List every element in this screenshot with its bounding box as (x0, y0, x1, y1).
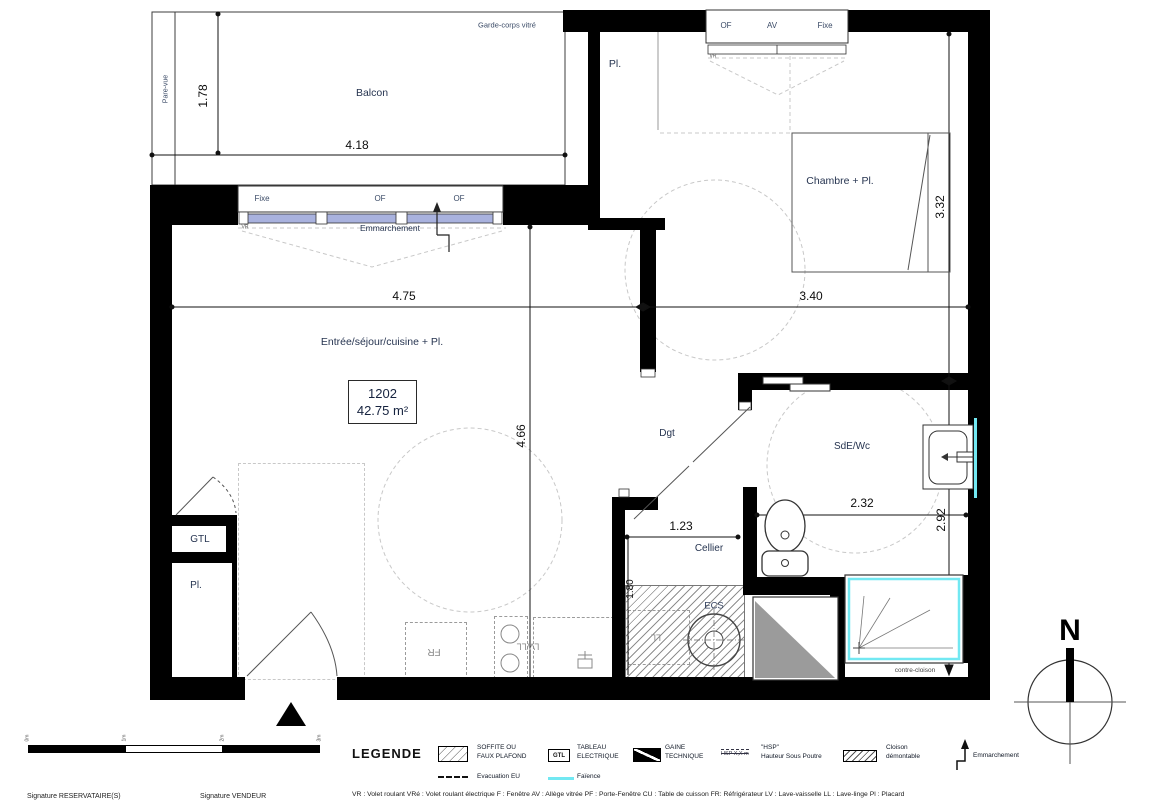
dim-cellar-width: 1.23 (669, 520, 692, 532)
fridge-label: FR (427, 646, 440, 656)
washer-dishwasher-label: LV/LL (517, 642, 540, 651)
legend-item-label: Faïence (577, 774, 601, 781)
room-label-cellar: Cellier (695, 544, 723, 554)
door-swings (176, 407, 750, 676)
water-heater (683, 609, 745, 671)
legend-item-label: Emmarchement (973, 753, 1019, 760)
room-label-closet-left: Pl. (190, 581, 202, 591)
legend-step-icon (957, 739, 969, 770)
dim-bedroom-height: 3.32 (934, 195, 946, 218)
screen-note: Pare-vue (163, 75, 170, 103)
toilet (762, 500, 808, 576)
legend-item-label: Cloison (886, 745, 908, 752)
evacuation-swatch (438, 776, 468, 778)
dim-bathroom-width: 2.32 (850, 497, 873, 509)
dim-balcony-depth: 1.78 (197, 84, 209, 107)
legend-item-label: Hauteur Sous Poutre (761, 754, 822, 761)
living-window (238, 186, 503, 224)
door-jambs (619, 369, 751, 497)
hsp-symbol: HSP X,X m (721, 749, 749, 757)
scale-tick: 2m (221, 735, 226, 742)
scale-tick: 3m (318, 735, 323, 742)
scale-segment (126, 746, 223, 752)
faience-swatch (548, 777, 574, 780)
room-label-bedroom: Chambre + Pl. (806, 176, 873, 187)
window-pane-label: AV (767, 22, 777, 30)
scale-bar (28, 745, 320, 753)
floorplan-drawing (0, 0, 1151, 800)
compass-north-label: N (1059, 616, 1081, 646)
room-label-balcony: Balcon (356, 88, 388, 99)
balcony-outline (152, 12, 658, 185)
scale-segment (222, 746, 319, 752)
shutter-label: VR (710, 55, 717, 60)
room-label-living: Entrée/séjour/cuisine + Pl. (321, 337, 443, 348)
railing-note: Garde-corps vitré (478, 21, 536, 29)
room-label-hallway: Dgt (659, 429, 675, 439)
technical-duct (753, 597, 838, 680)
window-pane-label: Fixe (254, 195, 269, 203)
window-pane-label: OF (453, 195, 464, 203)
scale-segment (29, 746, 126, 752)
compass-icon (1014, 648, 1126, 764)
legend-item-label: TABLEAU (577, 745, 606, 752)
floorplan-page: Garde-corps vitré Balcon Pare-vue 1.78 4… (0, 0, 1151, 800)
soffit-swatch (438, 746, 468, 762)
abbreviations-line: VR : Volet roulant VRé : Volet roulant é… (352, 791, 1142, 798)
electrical-panel-swatch-text: GTL (553, 753, 565, 759)
water-heater-label: ECS (704, 601, 724, 611)
entrance-marker (276, 702, 306, 726)
legend-item-label: démontable (886, 754, 920, 761)
counter-wall-note: contre-cloison (895, 668, 935, 675)
kitchen-faucet (578, 651, 592, 668)
window-pane-label: OF (720, 22, 731, 30)
bedroom-window (706, 10, 848, 54)
legend-item-label: SOFFITE OU (477, 745, 516, 752)
window-pane-label: Fixe (817, 22, 832, 30)
dim-balcony-width: 4.18 (345, 139, 368, 151)
unit-info-box: 1202 42.75 m² (348, 380, 417, 424)
shower (845, 575, 963, 663)
signature-left: Signature RESERVATAIRE(S) (27, 793, 121, 800)
dim-bathroom-height: 2.92 (935, 508, 947, 531)
unit-area: 42.75 m² (357, 403, 408, 418)
scale-tick: 1m (123, 735, 128, 742)
legend-item-label: "HSP" (761, 745, 779, 752)
dim-living-width: 4.75 (392, 290, 415, 302)
scale-tick: 0m (26, 735, 31, 742)
room-label-closet-top: Pl. (609, 59, 621, 70)
legend-title: LEGENDE (352, 746, 422, 761)
signature-right: Signature VENDEUR (200, 793, 266, 800)
unit-number: 1202 (368, 386, 397, 401)
electrical-panel-swatch: GTL (548, 749, 570, 762)
legend-item-label: ELECTRIQUE (577, 754, 619, 761)
legend-item-label: GAINE (665, 745, 685, 752)
wardrobe (792, 133, 950, 272)
room-label-bathroom: SdE/Wc (834, 442, 870, 452)
dim-bedroom-width: 3.40 (799, 290, 822, 302)
removable-partition-swatch (843, 750, 877, 762)
step-note: Emmarchement (360, 224, 420, 233)
legend-item-label: FAUX PLAFOND (477, 754, 526, 761)
window-pane-label: OF (374, 195, 385, 203)
legend-item-label: Evacuation EU (477, 774, 520, 781)
technical-duct-swatch (633, 748, 661, 762)
washer-label: LL (651, 633, 661, 642)
dim-cellar-height: 1.80 (626, 579, 636, 598)
room-label-gtl: GTL (190, 535, 209, 545)
faience-strip (974, 418, 977, 498)
shutter-label: VR (242, 226, 249, 231)
bathroom-sink (923, 425, 974, 489)
legend-item-label: TECHNIQUE (665, 754, 703, 761)
dim-living-height: 4.66 (515, 424, 527, 447)
